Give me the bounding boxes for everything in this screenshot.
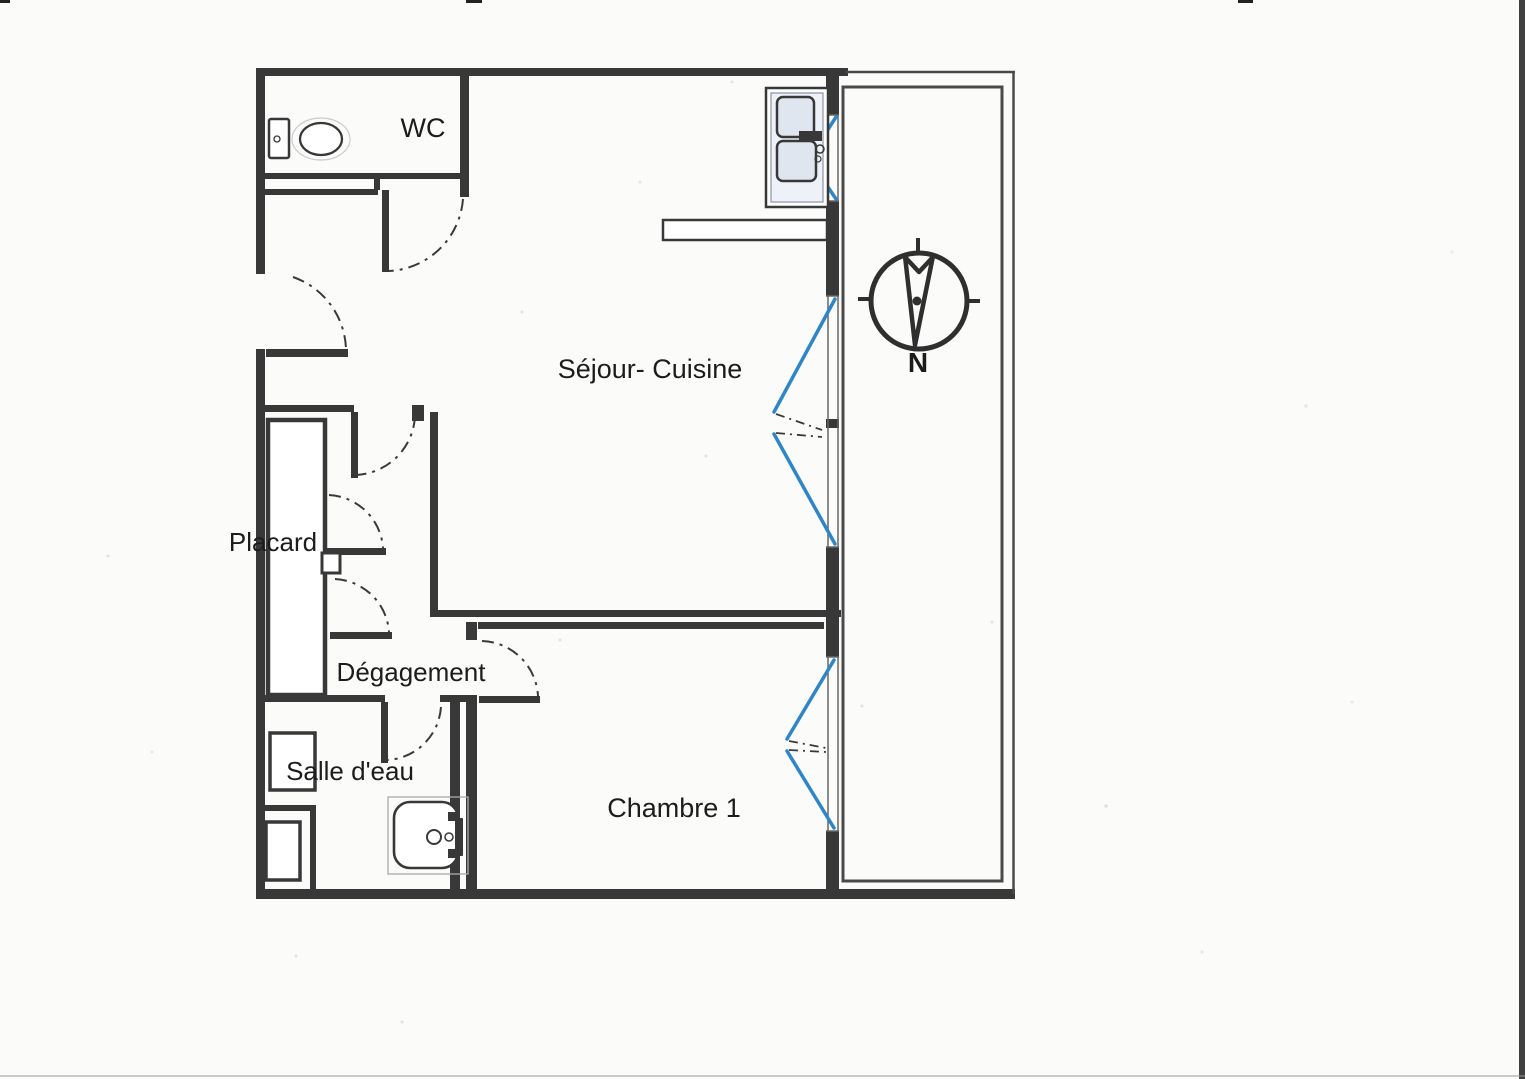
wall-wc-connector xyxy=(374,179,380,190)
window-sejour-casement-top xyxy=(774,299,835,412)
scanned-floorplan-page: N WC Séjour- Cuisine Placard Dégagement … xyxy=(0,0,1525,1079)
label-sejour-cuisine: Séjour- Cuisine xyxy=(558,354,743,384)
wall-sejour-left xyxy=(430,412,438,617)
wall-east-d xyxy=(826,831,839,889)
door-placard-lower-arc xyxy=(335,579,389,632)
door-salledeau-leaf xyxy=(381,702,388,763)
wall-wc-bottom xyxy=(256,173,468,179)
wall-corridor-top-jamb xyxy=(412,405,424,421)
toilet-icon xyxy=(269,118,350,160)
placard-divider-box xyxy=(322,553,340,573)
wall-outer-left-upper xyxy=(256,68,265,274)
shower-tray xyxy=(394,802,458,868)
compass-icon: N xyxy=(858,238,980,378)
wall-chambre-door-jamb xyxy=(466,622,477,640)
door-placard-upper-arc xyxy=(329,495,383,548)
door-chambre-arc xyxy=(482,641,538,696)
window-chambre-casement-bottom xyxy=(787,751,834,828)
door-salledeau-arc xyxy=(388,707,441,760)
label-placard: Placard xyxy=(229,527,317,557)
placard-box xyxy=(268,420,325,695)
label-wc: WC xyxy=(401,113,446,143)
wall-east-b xyxy=(826,201,839,296)
label-chambre-1: Chambre 1 xyxy=(607,793,741,823)
wall-east-c xyxy=(826,547,839,657)
toilet-tank xyxy=(269,119,289,158)
door-entry-leaf xyxy=(266,349,348,357)
wall-sejour-bottom xyxy=(430,610,841,617)
wall-salledeau-top-right xyxy=(440,695,477,702)
label-degagement: Dégagement xyxy=(337,657,487,687)
wall-outer-left-lower xyxy=(256,349,265,899)
door-chambre-leaf xyxy=(479,696,540,703)
wall-salledeau-nook-v xyxy=(310,805,316,889)
wall-outer-bottom xyxy=(256,889,1015,899)
sink-faucet xyxy=(799,131,822,141)
wall-salledeau-nook-h xyxy=(256,805,316,811)
window-sejour-casement-bottom xyxy=(774,434,835,544)
placard-cabinet xyxy=(268,420,340,695)
wall-wc-right xyxy=(460,76,469,197)
wall-chambre-top xyxy=(478,622,824,629)
balcony-inner-rect xyxy=(843,87,1002,881)
wall-entry-top xyxy=(256,189,378,195)
floorplan-svg: N WC Séjour- Cuisine Placard Dégagement … xyxy=(0,0,1525,1079)
window-casement-dashes xyxy=(776,414,826,752)
toilet-bowl xyxy=(300,123,342,155)
door-entry-arc xyxy=(293,277,346,349)
label-salle-deau: Salle d'eau xyxy=(286,756,414,786)
window-chambre-casement-top xyxy=(787,660,834,739)
balcony-outline xyxy=(843,72,1015,894)
scan-edge-right xyxy=(1519,0,1525,1079)
scan-mark-top-3 xyxy=(1238,0,1253,3)
wall-corridor-top xyxy=(264,405,354,412)
scan-mark-top-1 xyxy=(0,0,10,3)
shower-tap-bottom xyxy=(448,849,460,858)
kitchen-sink-icon xyxy=(766,88,828,207)
utility-unit xyxy=(266,822,300,880)
door-degagement-leaf xyxy=(351,412,358,478)
compass-north-label: N xyxy=(908,347,928,378)
door-wc-leaf xyxy=(382,190,389,272)
door-placard-lower-leaf xyxy=(330,632,392,639)
compass-center-dot xyxy=(913,297,922,306)
scan-edge-bottom xyxy=(0,1075,1525,1077)
wall-kitchen-return xyxy=(663,220,827,240)
wall-outer-top xyxy=(256,68,848,76)
shower-tap-top xyxy=(448,812,460,821)
door-wc-arc xyxy=(388,199,463,271)
door-degagement-arc xyxy=(356,416,415,475)
sink-basin-bottom xyxy=(777,141,816,181)
scan-mark-top-2 xyxy=(466,0,482,3)
